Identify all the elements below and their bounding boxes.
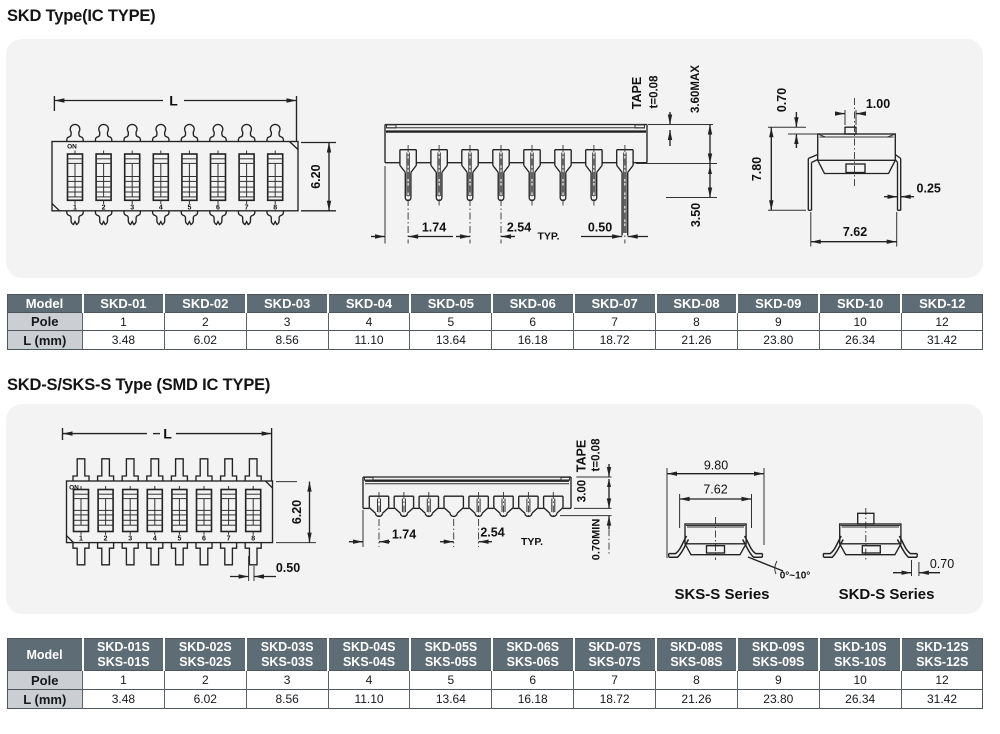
svg-text:0.50: 0.50: [588, 221, 612, 235]
svg-text:1: 1: [79, 536, 83, 543]
svg-text:7.80: 7.80: [750, 157, 764, 181]
svg-text:3: 3: [128, 536, 132, 543]
svg-text:t=0.08: t=0.08: [591, 438, 603, 472]
svg-text:2.54: 2.54: [480, 526, 504, 540]
svg-text:6.20: 6.20: [290, 500, 304, 524]
svg-text:TYP.: TYP.: [538, 231, 560, 243]
svg-text:4: 4: [159, 205, 163, 212]
svg-text:2.54: 2.54: [507, 221, 531, 235]
svg-text:3: 3: [130, 205, 134, 212]
svg-text:8: 8: [251, 536, 255, 543]
svg-text:SKD-S Series: SKD-S Series: [839, 586, 935, 603]
svg-text:TYP.: TYP.: [521, 536, 543, 548]
svg-text:ON: ON: [69, 485, 79, 492]
svg-text:7.62: 7.62: [843, 225, 867, 239]
svg-text:5: 5: [177, 536, 181, 543]
svg-text:L: L: [163, 426, 172, 442]
svg-text:ON: ON: [67, 144, 77, 151]
svg-text:t=0.08: t=0.08: [649, 75, 661, 109]
svg-text:1.74: 1.74: [392, 528, 416, 542]
svg-text:6: 6: [202, 536, 206, 543]
svg-text:2: 2: [104, 536, 108, 543]
svg-text:0.25: 0.25: [917, 182, 941, 196]
svg-text:3.50: 3.50: [689, 203, 703, 227]
svg-text:1.00: 1.00: [866, 97, 890, 111]
svg-text:0.70MIN: 0.70MIN: [591, 519, 603, 561]
svg-text:7: 7: [227, 536, 231, 543]
svg-text:0.50: 0.50: [276, 561, 300, 575]
svg-text:0.70: 0.70: [775, 88, 789, 112]
svg-text:TAPE: TAPE: [575, 440, 589, 472]
svg-text:L: L: [169, 93, 178, 109]
svg-text:SKS-S Series: SKS-S Series: [674, 586, 769, 603]
svg-text:9.80: 9.80: [704, 459, 728, 473]
svg-text:8: 8: [273, 205, 277, 212]
svg-text:1: 1: [73, 205, 77, 212]
svg-text:0°~10°: 0°~10°: [780, 571, 811, 582]
svg-text:TAPE: TAPE: [630, 77, 644, 109]
svg-text:1.74: 1.74: [422, 221, 446, 235]
svg-text:6: 6: [216, 205, 220, 212]
svg-text:3.00: 3.00: [577, 480, 589, 502]
svg-text:3.60MAX: 3.60MAX: [690, 65, 702, 113]
svg-text:5: 5: [187, 205, 191, 212]
svg-text:6.20: 6.20: [309, 164, 323, 188]
svg-text:4: 4: [153, 536, 157, 543]
svg-text:7: 7: [245, 205, 249, 212]
svg-text:7.62: 7.62: [703, 483, 727, 497]
svg-text:2: 2: [102, 205, 106, 212]
svg-text:0.70: 0.70: [930, 557, 954, 571]
